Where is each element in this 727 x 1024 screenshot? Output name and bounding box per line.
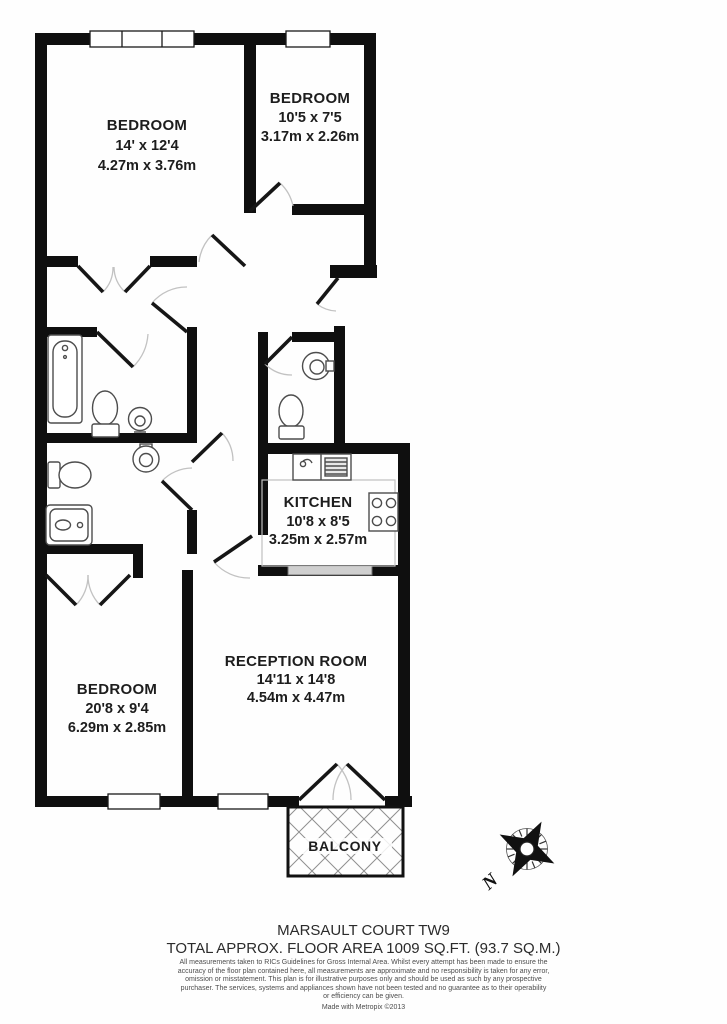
vanity-unit-icon [46, 505, 92, 545]
svg-text:14' x 12'4: 14' x 12'4 [115, 138, 178, 154]
floorplan-canvas: BALCONY BEDROOM 14' x 12'4 4.27m x 3.76m… [0, 0, 727, 1024]
sink-icon [303, 353, 335, 380]
svg-text:20'8 x 9'4: 20'8 x 9'4 [85, 701, 148, 717]
svg-text:BEDROOM: BEDROOM [270, 90, 350, 107]
floorplan-page: BALCONY BEDROOM 14' x 12'4 4.27m x 3.76m… [0, 0, 727, 1024]
sink-icon [133, 444, 159, 472]
floor-area-text: TOTAL APPROX. FLOOR AREA 1009 SQ.FT. (93… [0, 940, 727, 958]
toilet-icon [92, 391, 119, 437]
svg-text:3.17m x 2.26m: 3.17m x 2.26m [261, 129, 359, 145]
bathtub-icon [48, 335, 82, 423]
footer: MARSAULT COURT TW9 TOTAL APPROX. FLOOR A… [0, 922, 727, 958]
compass-icon: N [477, 807, 568, 895]
toilet-icon [279, 395, 304, 439]
credit-text: Made with Metropix ©2013 [0, 1004, 727, 1011]
svg-text:BEDROOM: BEDROOM [107, 117, 187, 134]
stove-icon [369, 493, 398, 531]
svg-text:3.25m x 2.57m: 3.25m x 2.57m [269, 532, 367, 548]
room-label-kitchen: KITCHEN 10'8 x 8'5 3.25m x 2.57m [269, 494, 367, 548]
svg-text:4.54m x 4.47m: 4.54m x 4.47m [247, 690, 345, 706]
kitchen-sink-icon [293, 454, 351, 480]
toilet-icon [48, 462, 91, 488]
svg-text:6.29m x 2.85m: 6.29m x 2.85m [68, 720, 166, 736]
disclaimer-text: All measurements taken to RICs Guideline… [178, 959, 550, 1002]
svg-text:14'11 x 14'8: 14'11 x 14'8 [257, 672, 336, 688]
svg-text:10'5 x 7'5: 10'5 x 7'5 [278, 110, 341, 126]
room-label-bedroom-3: BEDROOM 20'8 x 9'4 6.29m x 2.85m [68, 681, 166, 736]
svg-text:10'8 x 8'5: 10'8 x 8'5 [286, 514, 349, 530]
balcony-label: BALCONY [308, 838, 381, 854]
compass-north-label: N [477, 869, 503, 895]
room-label-bedroom-1: BEDROOM 14' x 12'4 4.27m x 3.76m [98, 117, 196, 174]
balcony: BALCONY [288, 807, 403, 876]
svg-text:4.27m x 3.76m: 4.27m x 3.76m [98, 158, 196, 174]
room-label-reception: RECEPTION ROOM 14'11 x 14'8 4.54m x 4.47… [225, 653, 368, 706]
room-label-bedroom-2: BEDROOM 10'5 x 7'5 3.17m x 2.26m [261, 90, 359, 145]
svg-text:RECEPTION ROOM: RECEPTION ROOM [225, 653, 368, 670]
svg-text:KITCHEN: KITCHEN [284, 494, 353, 511]
sink-icon [129, 408, 152, 433]
property-title: MARSAULT COURT TW9 [0, 922, 727, 940]
svg-text:BEDROOM: BEDROOM [77, 681, 157, 698]
